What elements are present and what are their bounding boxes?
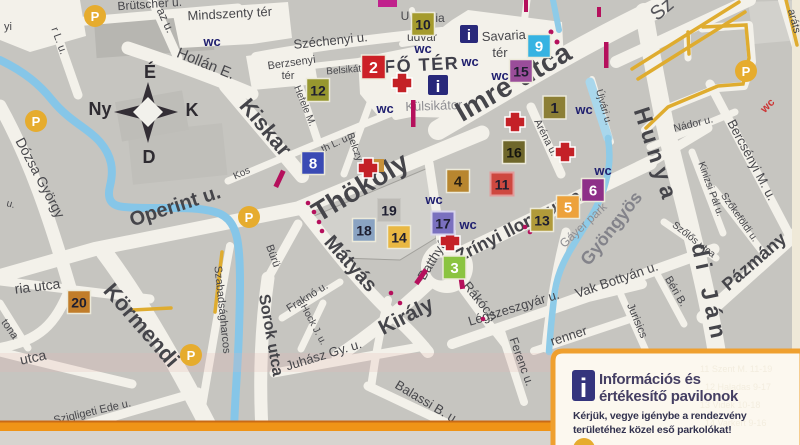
svg-text:12 Haladas 9-17: 12 Haladas 9-17	[705, 382, 771, 392]
svg-text:2: 2	[369, 60, 378, 77]
svg-text:19: 19	[381, 203, 397, 219]
svg-text:Ny: Ny	[88, 99, 111, 119]
svg-text:wc: wc	[375, 101, 393, 116]
svg-text:wc: wc	[424, 192, 442, 207]
svg-text:D: D	[143, 147, 156, 167]
svg-text:11 Szent M. 11-19: 11 Szent M. 11-19	[700, 364, 772, 374]
svg-text:8: 8	[309, 156, 317, 173]
svg-text:14: 14	[391, 230, 407, 246]
svg-text:tér: tér	[492, 45, 508, 60]
svg-text:10: 10	[415, 17, 431, 33]
svg-text:wc: wc	[413, 41, 431, 56]
svg-text:12: 12	[310, 83, 326, 99]
svg-text:5: 5	[564, 200, 572, 217]
svg-text:P: P	[245, 210, 254, 225]
svg-text:15: 15	[513, 64, 529, 80]
svg-text:tér: tér	[282, 70, 295, 82]
svg-text:wc: wc	[460, 54, 478, 69]
svg-text:i: i	[436, 77, 441, 96]
svg-text:11: 11	[495, 177, 510, 193]
svg-text:i: i	[580, 373, 588, 403]
svg-text:17: 17	[435, 216, 451, 232]
svg-text:É: É	[144, 61, 156, 82]
svg-text:Információs és: Információs és	[599, 371, 701, 388]
svg-text:yi: yi	[4, 21, 12, 33]
svg-text:P: P	[187, 348, 196, 363]
svg-text:6: 6	[589, 183, 597, 200]
svg-text:P: P	[742, 64, 751, 79]
svg-text:9: 9	[535, 39, 543, 56]
svg-text:Savaria: Savaria	[481, 27, 527, 44]
svg-text:3: 3	[450, 260, 458, 277]
svg-text:4: 4	[454, 174, 463, 191]
svg-text:20: 20	[71, 295, 87, 311]
svg-text:13 Videk 10-18: 13 Videk 10-18	[700, 400, 760, 410]
svg-text:16: 16	[506, 145, 522, 161]
svg-text:14 Varkert 9-16: 14 Varkert 9-16	[705, 418, 766, 428]
svg-text:i: i	[467, 27, 471, 44]
svg-text:wc: wc	[574, 102, 592, 117]
svg-text:wc: wc	[490, 68, 508, 83]
svg-text:13: 13	[534, 213, 550, 229]
svg-text:1: 1	[550, 100, 558, 117]
svg-text:K: K	[186, 100, 199, 120]
svg-text:U: U	[401, 9, 410, 23]
svg-text:18: 18	[356, 223, 372, 239]
svg-text:P: P	[32, 114, 41, 129]
svg-text:wc: wc	[202, 34, 220, 49]
svg-text:wc: wc	[458, 217, 476, 232]
svg-text:P: P	[91, 9, 100, 24]
svg-text:ia: ia	[435, 11, 445, 25]
svg-text:wc: wc	[593, 163, 611, 178]
